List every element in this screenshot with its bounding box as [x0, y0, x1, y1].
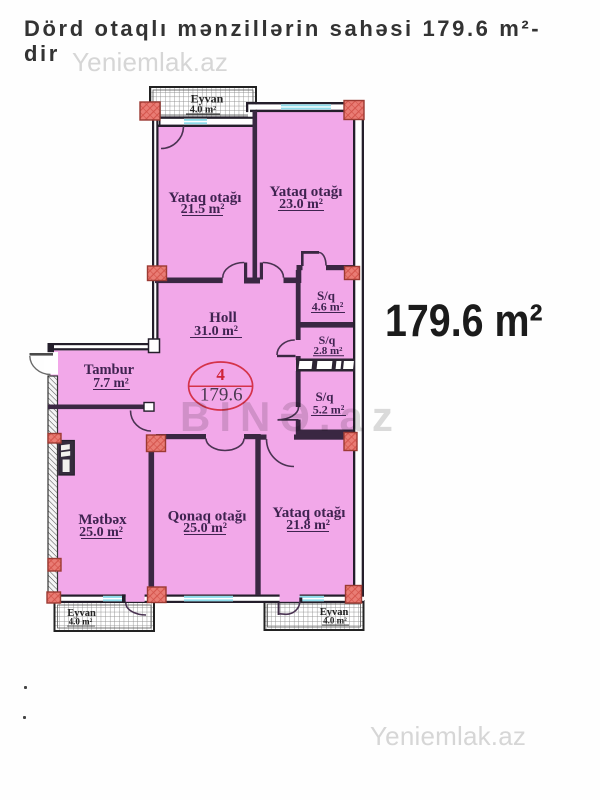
svg-text:31.0 m²: 31.0 m²: [194, 324, 238, 339]
svg-text:4.0 m²: 4.0 m²: [323, 616, 347, 626]
svg-text:Eyvan: Eyvan: [191, 92, 224, 106]
svg-text:25.0 m²: 25.0 m²: [79, 525, 123, 540]
svg-text:25.0 m²: 25.0 m²: [183, 521, 227, 536]
svg-text:4.6 m²: 4.6 m²: [312, 300, 344, 314]
svg-text:21.8 m²: 21.8 m²: [286, 518, 330, 533]
svg-text:23.0 m²: 23.0 m²: [279, 197, 323, 212]
svg-text:BINƏ.az: BINƏ.az: [180, 393, 402, 440]
svg-text:4.0 m²: 4.0 m²: [69, 617, 93, 627]
svg-text:4: 4: [216, 365, 225, 384]
svg-text:7.7 m²: 7.7 m²: [93, 375, 129, 390]
svg-text:2.8 m²: 2.8 m²: [314, 345, 344, 357]
svg-text:21.5 m²: 21.5 m²: [181, 202, 225, 217]
